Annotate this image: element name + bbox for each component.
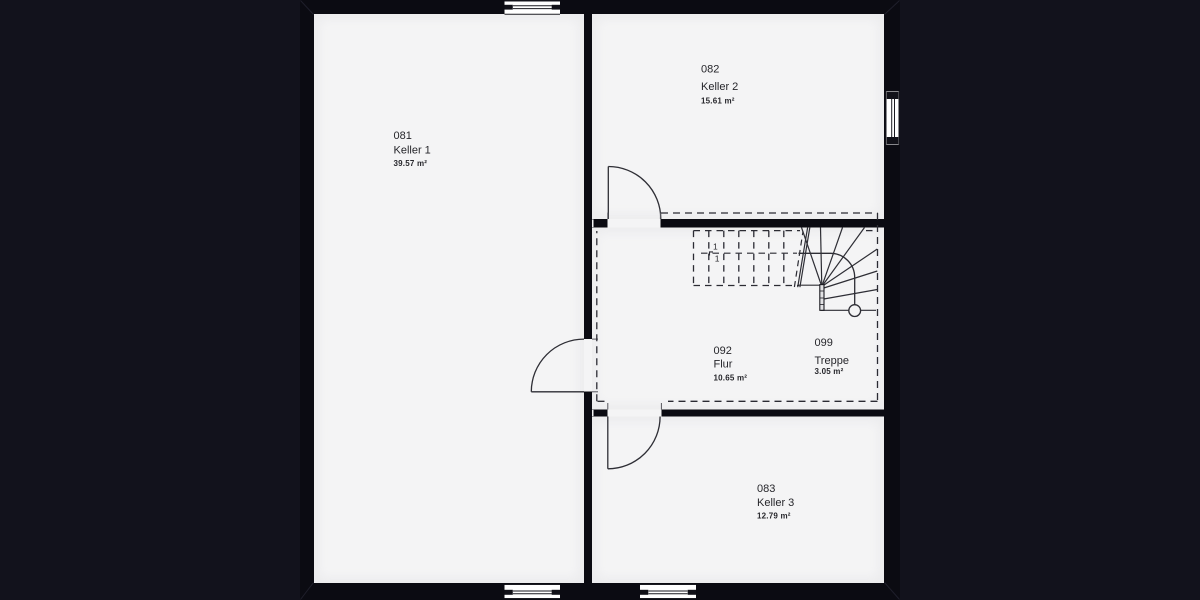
svg-text:3.05 m²: 3.05 m² bbox=[815, 367, 844, 376]
svg-text:Keller 3: Keller 3 bbox=[757, 497, 794, 509]
svg-text:092: 092 bbox=[714, 345, 732, 357]
svg-text:10.65 m²: 10.65 m² bbox=[714, 374, 748, 383]
svg-text:Keller 2: Keller 2 bbox=[701, 81, 738, 93]
svg-text:1: 1 bbox=[713, 241, 718, 251]
svg-text:099: 099 bbox=[815, 337, 833, 349]
svg-text:083: 083 bbox=[757, 483, 775, 495]
svg-text:082: 082 bbox=[701, 64, 719, 76]
svg-text:Treppe: Treppe bbox=[815, 355, 849, 367]
svg-text:15.61 m²: 15.61 m² bbox=[701, 97, 735, 106]
svg-text:1: 1 bbox=[715, 254, 720, 264]
svg-text:12.79 m²: 12.79 m² bbox=[757, 511, 791, 520]
svg-text:Keller 1: Keller 1 bbox=[394, 145, 431, 157]
svg-text:Flur: Flur bbox=[714, 359, 733, 371]
svg-text:39.57 m²: 39.57 m² bbox=[394, 159, 428, 168]
svg-text:081: 081 bbox=[394, 130, 412, 142]
